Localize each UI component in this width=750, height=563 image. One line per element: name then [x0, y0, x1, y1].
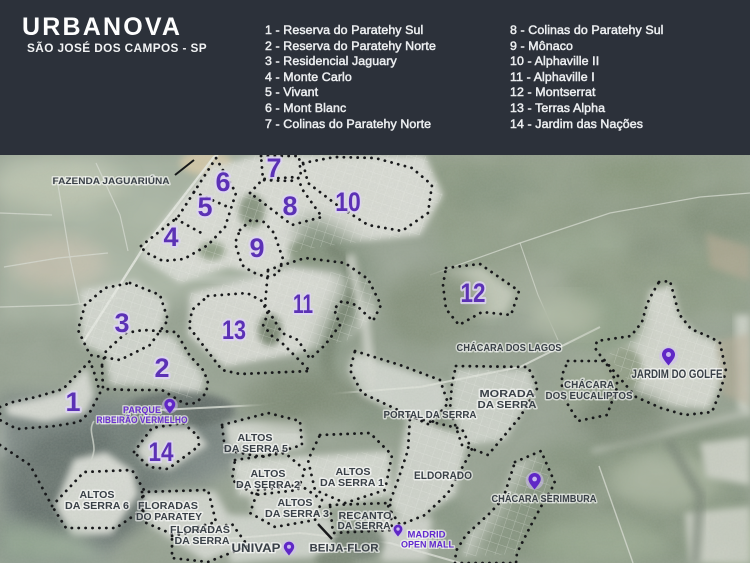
- svg-text:PORTAL DA SERRA: PORTAL DA SERRA: [384, 409, 477, 421]
- svg-text:4: 4: [163, 222, 178, 252]
- svg-text:OPEN MALL: OPEN MALL: [401, 540, 454, 551]
- svg-text:6: 6: [215, 167, 230, 197]
- svg-text:5: 5: [197, 192, 212, 222]
- svg-text:ALTOS: ALTOS: [336, 467, 371, 478]
- svg-text:11: 11: [293, 289, 313, 319]
- svg-text:UNIVAP: UNIVAP: [232, 541, 281, 555]
- svg-text:13: 13: [222, 315, 246, 345]
- svg-text:10: 10: [335, 187, 361, 217]
- svg-text:7: 7: [266, 155, 281, 183]
- svg-text:BEIJA-FLOR: BEIJA-FLOR: [310, 543, 379, 555]
- svg-text:FLORADAS: FLORADAS: [138, 501, 198, 512]
- svg-text:FLORADAS: FLORADAS: [170, 525, 230, 536]
- svg-text:9: 9: [249, 233, 264, 263]
- svg-text:DA SERRA 5: DA SERRA 5: [224, 444, 288, 455]
- svg-text:CHÁCARA: CHÁCARA: [564, 378, 614, 391]
- svg-text:DA SERRA 6: DA SERRA 6: [65, 501, 129, 512]
- svg-text:DOS EUCALIPTOS: DOS EUCALIPTOS: [546, 391, 633, 402]
- svg-text:ELDORADO: ELDORADO: [414, 470, 472, 482]
- svg-text:DA SERRA: DA SERRA: [175, 536, 230, 547]
- svg-text:8: 8: [282, 191, 297, 221]
- svg-text:DA SERRA 2: DA SERRA 2: [236, 480, 300, 491]
- svg-text:RIBEIRÃO VERMELHO: RIBEIRÃO VERMELHO: [97, 415, 188, 426]
- svg-text:1: 1: [65, 387, 80, 417]
- svg-text:DA SERRA 1: DA SERRA 1: [320, 478, 384, 489]
- svg-text:CHÁCARA SERIMBURA: CHÁCARA SERIMBURA: [492, 492, 597, 505]
- svg-text:14: 14: [149, 437, 174, 467]
- svg-text:ALTOS: ALTOS: [80, 490, 115, 501]
- svg-text:12: 12: [461, 278, 486, 308]
- svg-text:DA SERRA: DA SERRA: [478, 399, 537, 411]
- svg-text:DA SERRA: DA SERRA: [338, 521, 391, 532]
- svg-text:ALTOS: ALTOS: [238, 433, 273, 444]
- svg-text:ALTOS: ALTOS: [278, 498, 313, 509]
- svg-text:DO PARATEY: DO PARATEY: [136, 512, 202, 523]
- svg-text:2: 2: [154, 353, 169, 383]
- svg-text:CHÁCARA DOS LAGOS: CHÁCARA DOS LAGOS: [457, 341, 562, 354]
- svg-text:ALTOS: ALTOS: [251, 469, 286, 480]
- svg-text:JARDIM DO GOLFE: JARDIM DO GOLFE: [632, 369, 723, 381]
- svg-text:3: 3: [114, 308, 129, 338]
- svg-text:FAZENDA JAGUARIÚNA: FAZENDA JAGUARIÚNA: [53, 175, 170, 187]
- svg-text:DA SERRA 3: DA SERRA 3: [265, 509, 329, 520]
